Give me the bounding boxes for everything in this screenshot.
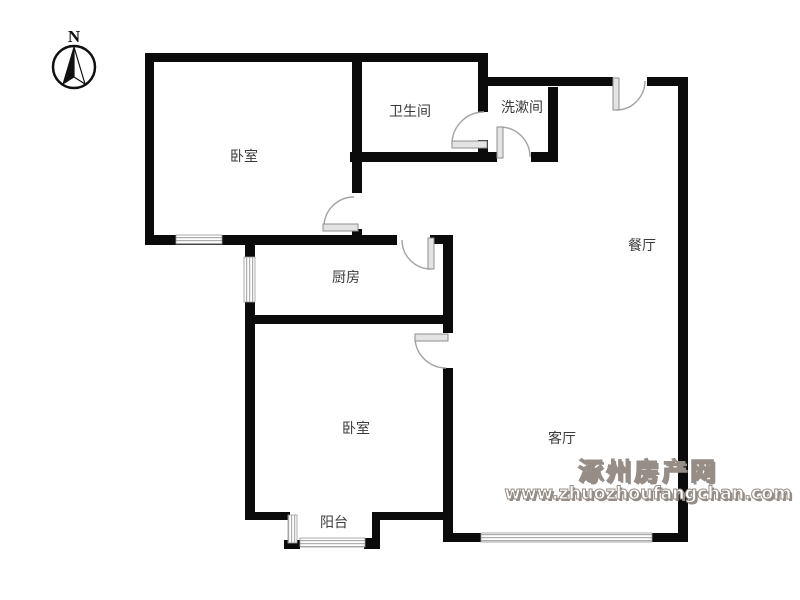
door-swing-arc-kitchen [402, 240, 431, 269]
wall-top-main [145, 53, 486, 62]
room-label-bedroom-2: 卧室 [342, 420, 370, 437]
compass-n-label: N [68, 27, 81, 46]
north-compass-icon: N [53, 27, 95, 88]
room-label-bedroom-1: 卧室 [230, 148, 258, 165]
room-label-dining-room: 餐厅 [628, 238, 656, 254]
window-living-bottom [481, 533, 652, 542]
wall-divider-mid-a [443, 244, 453, 333]
door-leaf-entrance [613, 78, 619, 110]
wall-kitchen-left-b [245, 300, 255, 318]
window-balcony-bottom [300, 538, 365, 547]
wall-washroom-right [548, 87, 558, 162]
window-balcony-left [288, 515, 297, 543]
wall-bedroom2-bottom-b [372, 512, 453, 520]
door-leaf-kitchen [428, 238, 434, 269]
doors [323, 78, 645, 368]
room-label-balcony: 阳台 [320, 515, 348, 531]
door-swing-arc-bathroom [452, 112, 484, 144]
watermark-site-name: 涿州房产网 [578, 457, 718, 486]
floor-plan-canvas: N 卧室 卫生间 洗漱间 厨房 餐厅 卧室 客厅 阳台 涿州房产网 涿州房产网 … [0, 0, 800, 600]
room-label-living-room: 客厅 [548, 430, 576, 447]
wall-bath-bottom-a [350, 152, 497, 162]
door-leaf-bedroom2 [415, 334, 448, 341]
door-leaf-bathroom [452, 141, 487, 148]
wall-bedroom1-right-a [352, 53, 362, 193]
room-label-kitchen: 厨房 [332, 270, 360, 286]
wall-top-right-a [478, 77, 613, 86]
door-swing-arc-bedroom1 [324, 197, 354, 227]
window-kitchen-left [244, 257, 255, 302]
window-bedroom1 [176, 235, 222, 244]
wall-balcony-right [372, 512, 380, 549]
door-swing-arc-entrance [616, 81, 645, 110]
wall-kitchen-bottom [245, 315, 453, 324]
room-label-washroom: 洗漱间 [501, 100, 543, 116]
watermark: 涿州房产网 涿州房产网 www.zhuozhoufangchan.com www… [504, 457, 793, 506]
door-swing-arc-bedroom2 [415, 337, 446, 368]
floor-plan: N 卧室 卫生间 洗漱间 厨房 餐厅 卧室 客厅 阳台 涿州房产网 涿州房产网 … [0, 0, 800, 600]
room-label-bathroom: 卫生间 [389, 104, 431, 120]
wall-bath-right-a [478, 53, 488, 112]
wall-bedroom2-left [245, 320, 255, 516]
watermark-site-url: www.zhuozhoufangchan.com [504, 484, 791, 504]
wall-left-bedroom1 [145, 53, 154, 245]
door-leaf-bedroom1 [323, 224, 358, 231]
wall-divider-mid-b [443, 368, 453, 542]
door-leaf-washroom [497, 127, 503, 158]
door-swing-arc-washroom [500, 127, 530, 157]
